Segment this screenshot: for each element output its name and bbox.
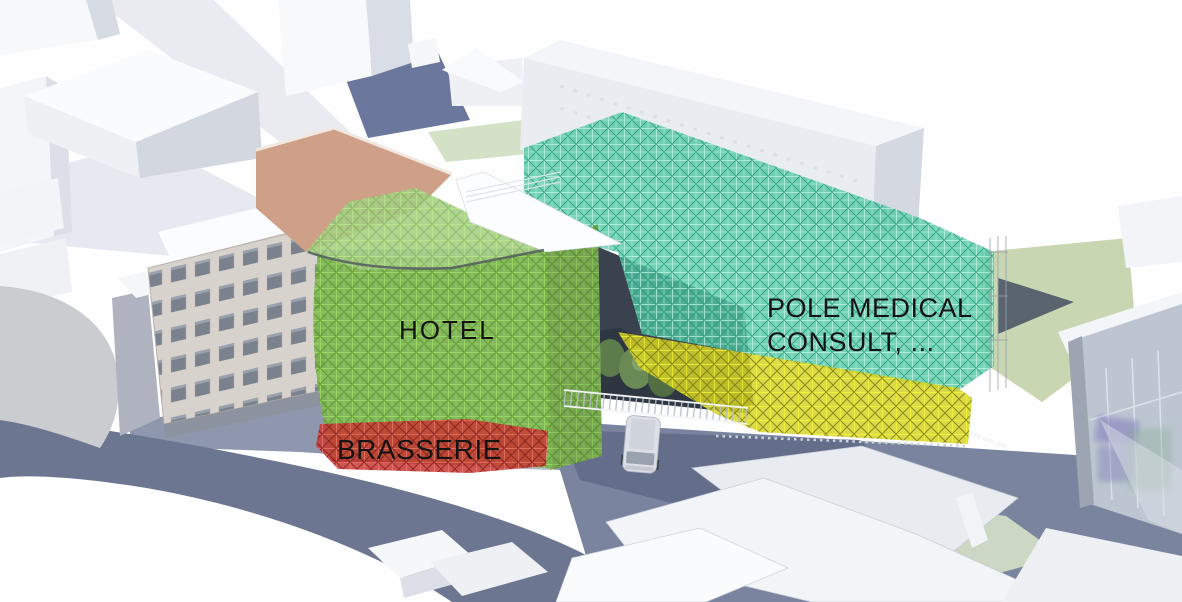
pole-medical-label-line2: CONSULT, ... (767, 327, 935, 357)
hotel-right-face-shade (544, 224, 602, 470)
van (620, 415, 663, 474)
massing-scene: HOTEL BRASSERIE POLE MEDICAL CONSULT, ..… (0, 0, 1182, 602)
brasserie-label: BRASSERIE (337, 434, 502, 465)
hotel-label: HOTEL (399, 315, 496, 345)
block-ne (1118, 196, 1182, 268)
pole-medical-label-line1: POLE MEDICAL (767, 293, 973, 323)
architectural-render: HOTEL BRASSERIE POLE MEDICAL CONSULT, ..… (0, 0, 1182, 602)
